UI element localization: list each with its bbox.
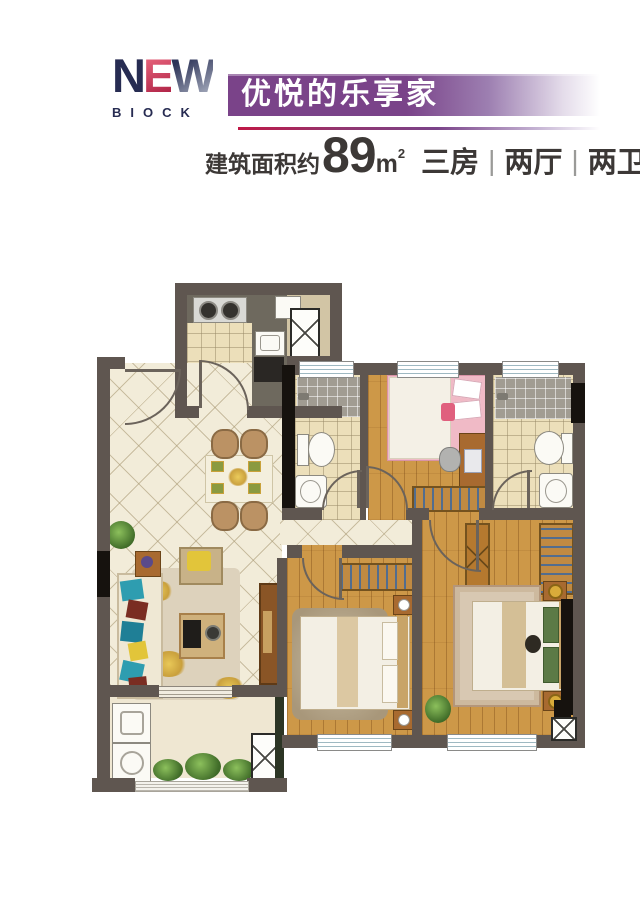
wall — [175, 406, 199, 418]
bed-decor — [525, 635, 541, 653]
banner-title: 优悦的乐享家 — [228, 74, 600, 116]
toilet1-bowl — [308, 432, 335, 467]
table-centerpiece — [228, 468, 248, 486]
kids-door-leaf — [366, 466, 369, 508]
place-mat — [248, 461, 261, 472]
shower-head-icon — [298, 393, 309, 400]
wall-structural — [97, 551, 110, 597]
wall-structural — [561, 599, 573, 715]
area-unit: m — [376, 150, 398, 179]
wall — [175, 283, 342, 295]
balcony-railing — [135, 781, 249, 792]
window — [447, 734, 537, 751]
bedroom2-headboard — [397, 616, 408, 708]
armchair-cushion — [187, 551, 211, 571]
balcony-plants — [185, 753, 221, 780]
kids-bed-decor — [441, 403, 455, 421]
wall — [282, 508, 322, 520]
sofa-pillow-red — [126, 599, 149, 620]
spec-halls: 两厅 — [504, 139, 562, 181]
place-mat — [211, 483, 224, 494]
hallway-floor — [280, 520, 412, 545]
washer-door-icon — [120, 711, 144, 735]
potted-plant — [107, 521, 135, 549]
pillow — [382, 622, 398, 660]
spec-rooms: 三房 — [421, 139, 479, 181]
wall-exterior-right — [573, 375, 585, 747]
area-value: 89 — [322, 130, 376, 180]
bedroom2-bed-runner — [337, 617, 358, 707]
coffee-table-pot — [205, 625, 221, 641]
window — [299, 361, 354, 378]
kitchen-base-cabinet — [254, 357, 284, 382]
sink-basin-icon — [260, 335, 280, 351]
window — [397, 361, 459, 378]
wall — [485, 368, 493, 508]
master-bed-runner — [502, 602, 526, 688]
pillow-green — [543, 607, 559, 643]
floor-plan — [87, 283, 602, 818]
toilet2-bowl — [534, 431, 564, 465]
wall — [92, 778, 135, 792]
place-mat — [211, 461, 224, 472]
area-unit-sup: 2 — [398, 146, 405, 161]
logo-subtitle: BIOCK — [112, 105, 230, 120]
gold-lamp-icon — [548, 584, 563, 599]
logo-letter-e: E — [143, 52, 171, 99]
spec-separator: | — [488, 145, 495, 177]
bedroom2-wardrobe — [339, 563, 419, 591]
brand-logo: N E W BIOCK — [112, 52, 230, 120]
logo-letter-n: N — [112, 52, 143, 99]
tv-cabinet-panel — [263, 611, 272, 653]
wall — [175, 283, 187, 418]
window — [317, 734, 392, 751]
kids-pillow — [452, 378, 482, 400]
stove-burner-icon — [199, 301, 218, 320]
kids-desk-chair — [439, 447, 461, 472]
dining-chair — [211, 501, 239, 531]
wall — [97, 685, 159, 697]
wall — [247, 778, 287, 792]
dining-chair — [211, 429, 239, 459]
wall-structural — [282, 365, 295, 508]
spec-baths: 两卫 — [588, 139, 640, 181]
basin-bowl-icon — [545, 479, 567, 503]
flue-shaft-icon — [290, 308, 320, 358]
balcony-plants — [153, 759, 183, 781]
master-door-leaf — [476, 520, 479, 570]
flue-shaft-icon — [551, 717, 577, 741]
shower-head-icon — [497, 393, 508, 400]
kids-laptop-icon — [464, 449, 482, 473]
table-lamp-icon — [398, 714, 410, 726]
sofa-pillow-blue — [120, 621, 144, 643]
pillow — [382, 665, 398, 703]
wall — [417, 508, 429, 520]
poster: N E W BIOCK 优悦的乐享家 建筑面积约 89 m 2 三房 | 两厅 … — [0, 0, 640, 920]
kitchen-door-leaf — [199, 360, 202, 408]
bathroom1-door-leaf — [357, 470, 360, 508]
spec-line: 建筑面积约 89 m 2 三房 | 两厅 | 两卫 — [205, 130, 640, 178]
washer-drum-icon — [120, 751, 144, 775]
wall-structural — [571, 383, 585, 423]
window — [502, 361, 559, 378]
pillow-green — [543, 647, 559, 683]
dining-chair — [240, 429, 268, 459]
potted-plant — [425, 695, 451, 723]
wall — [342, 545, 417, 558]
wall — [232, 685, 287, 697]
entry-door-leaf — [125, 369, 179, 372]
spec-separator: | — [571, 145, 578, 177]
logo-word: N E W — [112, 52, 230, 99]
side-table-flowers — [141, 556, 153, 568]
sofa-pillow-teal — [120, 579, 145, 602]
bedroom2-door-leaf — [339, 558, 342, 598]
title-banner: 优悦的乐享家 — [228, 74, 600, 116]
sofa-pillow-yellow — [128, 641, 149, 662]
sliding-door-threshold — [159, 686, 232, 698]
logo-letter-w: W — [171, 52, 212, 99]
place-mat — [248, 483, 261, 494]
wall — [287, 545, 302, 558]
coffee-table-tray — [183, 620, 201, 648]
table-lamp-icon — [398, 599, 410, 611]
bathroom2-door-leaf — [527, 470, 530, 508]
wall — [412, 520, 422, 738]
basin-bowl-icon — [300, 480, 321, 503]
wall — [277, 558, 287, 695]
stove-burner-icon — [221, 301, 240, 320]
dining-chair — [240, 501, 268, 531]
area-prefix: 建筑面积约 — [205, 145, 320, 179]
kids-pillow — [452, 400, 482, 421]
